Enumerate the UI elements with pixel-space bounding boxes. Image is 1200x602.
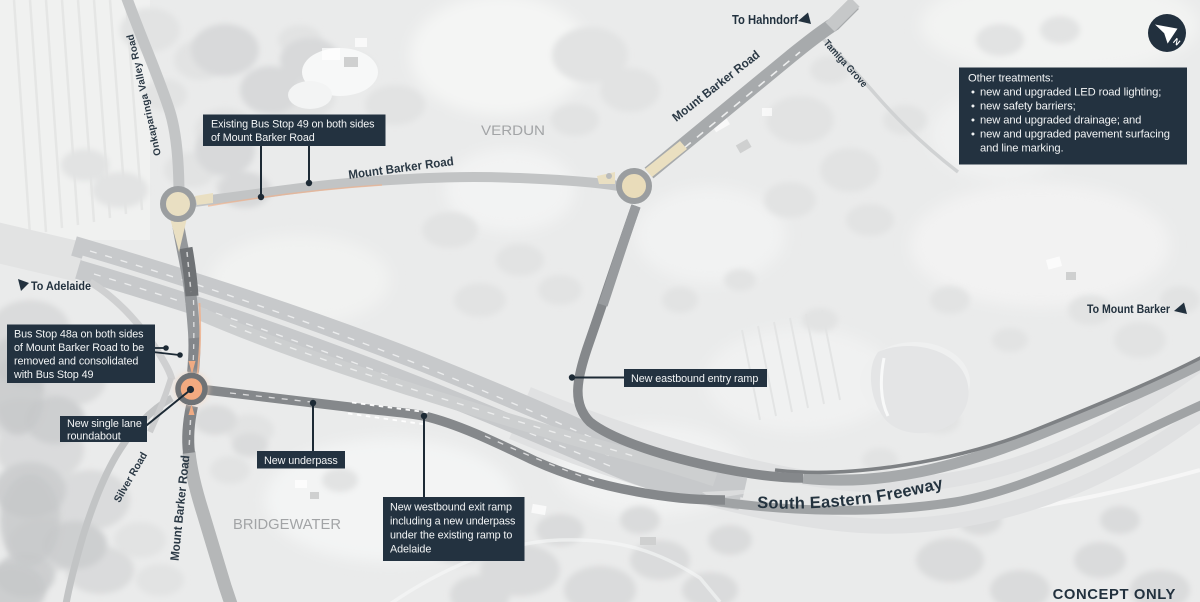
svg-text:Adelaide: Adelaide: [390, 544, 431, 556]
svg-text:Existing Bus Stop 49 on both s: Existing Bus Stop 49 on both sides: [211, 119, 375, 131]
svg-text:•: •: [971, 87, 975, 99]
svg-text:under the existing ramp to: under the existing ramp to: [390, 530, 512, 542]
svg-text:To Adelaide: To Adelaide: [31, 279, 91, 293]
svg-text:To Mount Barker: To Mount Barker: [1087, 302, 1170, 316]
svg-text:and line marking.: and line marking.: [980, 143, 1064, 155]
svg-text:CONCEPT ONLY: CONCEPT ONLY: [1053, 587, 1176, 602]
svg-text:Bus Stop 48a on both sides: Bus Stop 48a on both sides: [14, 329, 144, 341]
svg-text:•: •: [971, 115, 975, 127]
svg-text:of Mount Barker Road to be: of Mount Barker Road to be: [14, 342, 144, 354]
svg-text:new and upgraded LED road ligh: new and upgraded LED road lighting;: [980, 87, 1161, 99]
svg-text:To Hahndorf: To Hahndorf: [732, 13, 799, 27]
svg-text:including a new underpass: including a new underpass: [390, 516, 516, 528]
svg-text:removed and consolidated: removed and consolidated: [14, 356, 138, 368]
svg-text:Other treatments:: Other treatments:: [968, 73, 1053, 85]
svg-text:•: •: [971, 129, 975, 141]
svg-text:BRIDGEWATER: BRIDGEWATER: [233, 517, 341, 533]
svg-text:new safety barriers;: new safety barriers;: [980, 101, 1076, 113]
svg-text:•: •: [971, 101, 975, 113]
svg-text:new and upgraded pavement surf: new and upgraded pavement surfacing: [980, 129, 1170, 141]
svg-text:new and upgraded drainage; and: new and upgraded drainage; and: [980, 115, 1141, 127]
svg-text:roundabout: roundabout: [67, 431, 121, 443]
svg-text:New eastbound entry ramp: New eastbound entry ramp: [631, 373, 758, 385]
svg-text:of Mount Barker Road: of Mount Barker Road: [211, 132, 315, 144]
svg-text:VERDUN: VERDUN: [481, 123, 545, 138]
svg-text:with Bus Stop 49: with Bus Stop 49: [13, 369, 94, 381]
svg-text:New westbound exit ramp: New westbound exit ramp: [390, 502, 512, 514]
svg-text:New underpass: New underpass: [264, 455, 338, 467]
svg-text:New single lane: New single lane: [67, 418, 142, 430]
